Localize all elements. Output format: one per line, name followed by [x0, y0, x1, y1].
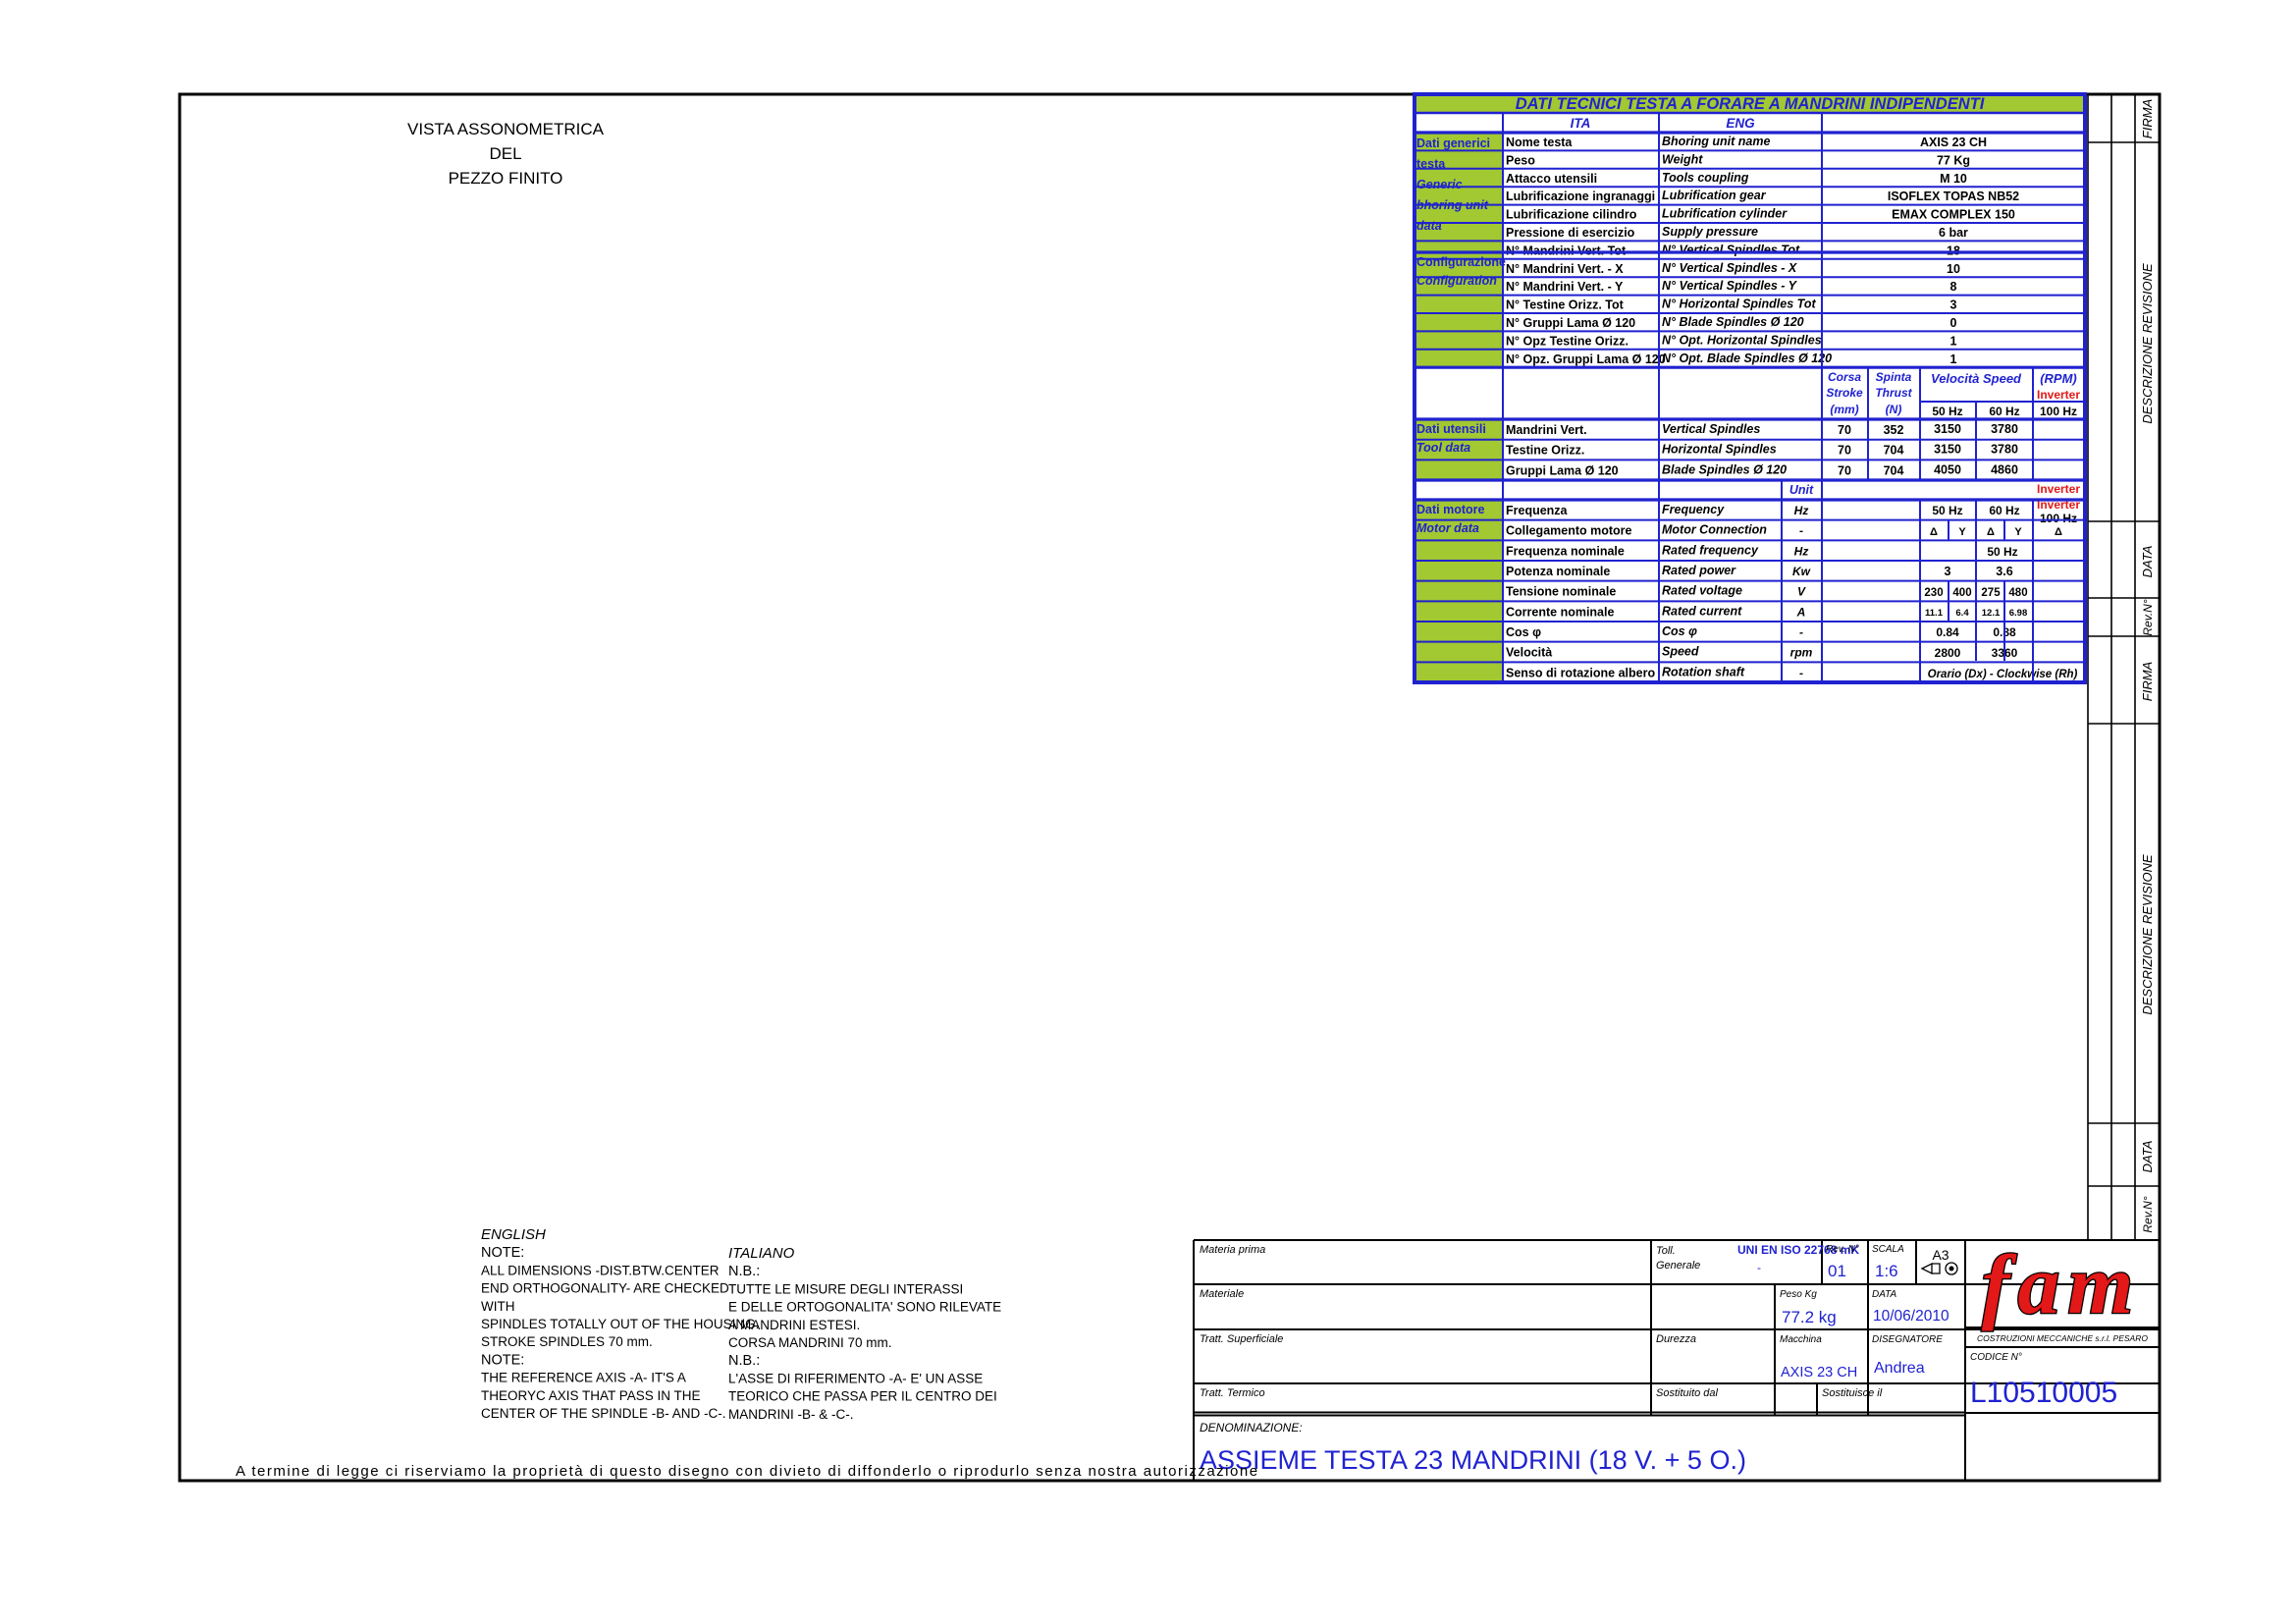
svg-text:Testine Orizz.: Testine Orizz. [1506, 444, 1584, 458]
svg-text:6.4: 6.4 [1955, 608, 1969, 619]
svg-text:Spinta: Spinta [1876, 370, 1912, 384]
svg-text:01: 01 [1828, 1262, 1846, 1280]
svg-text:ITALIANO: ITALIANO [728, 1245, 795, 1262]
svg-text:6.98: 6.98 [2009, 608, 2028, 619]
svg-text:Durezza: Durezza [1656, 1333, 1696, 1345]
svg-text:60 Hz: 60 Hz [1989, 405, 2019, 418]
svg-text:N° Gruppi Lama Ø 120: N° Gruppi Lama Ø 120 [1506, 316, 1635, 330]
svg-text:3780: 3780 [1991, 443, 2018, 457]
svg-text:Motor data: Motor data [1416, 521, 1479, 535]
svg-text:Dati generici: Dati generici [1416, 136, 1490, 150]
svg-text:Potenza nominale: Potenza nominale [1506, 565, 1610, 578]
svg-text:Horizontal Spindles: Horizontal Spindles [1662, 443, 1777, 457]
svg-text:4050: 4050 [1934, 462, 1961, 476]
svg-text:3: 3 [1945, 565, 1951, 578]
svg-text:Stroke: Stroke [1826, 386, 1863, 400]
svg-text:CODICE N°: CODICE N° [1970, 1352, 2022, 1363]
svg-text:Δ: Δ [1987, 526, 1995, 538]
svg-text:-: - [1799, 625, 1803, 639]
svg-text:ISOFLEX TOPAS NB52: ISOFLEX TOPAS NB52 [1888, 189, 2019, 203]
svg-text:Tool data: Tool data [1416, 441, 1470, 455]
svg-text:704: 704 [1884, 463, 1904, 477]
svg-text:Rotation shaft: Rotation shaft [1662, 665, 1745, 678]
svg-text:Senso di rotazione albero: Senso di rotazione albero [1506, 666, 1655, 679]
svg-text:N.B.:: N.B.: [728, 1264, 760, 1279]
svg-text:N° Testine Orizz. Tot: N° Testine Orizz. Tot [1506, 298, 1625, 312]
svg-text:Velocità Speed: Velocità Speed [1931, 371, 2022, 386]
svg-text:Collegamento motore: Collegamento motore [1506, 524, 1632, 538]
svg-text:COSTRUZIONI MECCANICHE s.r.l.: COSTRUZIONI MECCANICHE s.r.l. PESARO [1977, 1333, 2148, 1343]
svg-text:N.B.:: N.B.: [728, 1353, 760, 1369]
svg-text:SPINDLES TOTALLY OUT OF THE HO: SPINDLES TOTALLY OUT OF THE HOUSING. [481, 1317, 759, 1331]
svg-text:Corrente nominale: Corrente nominale [1506, 605, 1614, 619]
svg-text:MANDRINI -B- & -C-.: MANDRINI -B- & -C-. [728, 1407, 854, 1422]
svg-text:Sostituito dal: Sostituito dal [1656, 1387, 1719, 1399]
svg-text:AXIS 23 CH: AXIS 23 CH [1920, 135, 1987, 149]
svg-text:N° Blade Spindles Ø 120: N° Blade Spindles Ø 120 [1662, 315, 1804, 329]
svg-text:8: 8 [1950, 280, 1957, 294]
svg-text:DEL: DEL [489, 144, 521, 163]
svg-text:Generic: Generic [1416, 178, 1463, 191]
svg-text:77.2 kg: 77.2 kg [1782, 1308, 1837, 1326]
svg-text:Configuration: Configuration [1416, 274, 1497, 288]
svg-text:STROKE SPINDLES 70 mm.: STROKE SPINDLES 70 mm. [481, 1334, 653, 1349]
svg-text:Inverter: Inverter [2037, 388, 2080, 402]
svg-text:Frequenza: Frequenza [1506, 504, 1569, 517]
svg-text:Vertical Spindles: Vertical Spindles [1662, 422, 1760, 436]
svg-text:Supply pressure: Supply pressure [1662, 225, 1758, 239]
svg-text:70: 70 [1838, 463, 1851, 477]
svg-text:Dati utensili: Dati utensili [1416, 422, 1486, 436]
svg-text:Configurazione: Configurazione [1416, 255, 1506, 269]
svg-text:Macchina: Macchina [1780, 1334, 1822, 1345]
svg-text:6 bar: 6 bar [1939, 226, 1968, 240]
svg-text:Dati motore: Dati motore [1416, 503, 1485, 516]
svg-text:Blade Spindles Ø 120: Blade Spindles Ø 120 [1662, 462, 1787, 476]
svg-text:N° Mandrini Vert. - Y: N° Mandrini Vert. - Y [1506, 280, 1624, 294]
svg-text:N° Horizontal Spindles Tot: N° Horizontal Spindles Tot [1662, 298, 1816, 311]
svg-text:FIRMA: FIRMA [2140, 99, 2155, 138]
svg-text:A: A [1796, 605, 1806, 619]
svg-text:TUTTE LE MISURE DEGLI INTERASS: TUTTE LE MISURE DEGLI INTERASSI [728, 1281, 963, 1296]
svg-text:M 10: M 10 [1940, 172, 1967, 186]
svg-text:10: 10 [1947, 262, 1960, 276]
svg-text:ALL DIMENSIONS -DIST.BTW.CENTE: ALL DIMENSIONS -DIST.BTW.CENTER [481, 1263, 720, 1277]
svg-text:N° Mandrini Vert. - X: N° Mandrini Vert. - X [1506, 262, 1624, 276]
svg-text:Rev.N°: Rev.N° [2141, 599, 2155, 635]
svg-text:Δ: Δ [1930, 526, 1938, 538]
svg-text:Frequency: Frequency [1662, 503, 1725, 516]
svg-text:230: 230 [1924, 587, 1943, 599]
svg-text:EMAX COMPLEX 150: EMAX COMPLEX 150 [1892, 208, 2015, 222]
svg-text:N° Opz Testine Orizz.: N° Opz Testine Orizz. [1506, 334, 1629, 348]
svg-text:Cos φ: Cos φ [1506, 625, 1541, 639]
svg-text:DISEGNATORE: DISEGNATORE [1872, 1334, 1943, 1345]
svg-text:3: 3 [1950, 298, 1957, 312]
svg-text:Peso Kg: Peso Kg [1780, 1289, 1817, 1300]
svg-text:E DELLE ORTOGONALITA' SONO RIL: E DELLE ORTOGONALITA' SONO RILEVATE [728, 1300, 1001, 1315]
svg-text:Tratt. Termico: Tratt. Termico [1200, 1387, 1265, 1399]
svg-text:(RPM): (RPM) [2040, 371, 2077, 386]
svg-text:Sostituisce il: Sostituisce il [1822, 1387, 1883, 1399]
svg-text:N° Opt. Horizontal Spindles: N° Opt. Horizontal Spindles [1662, 333, 1822, 347]
svg-text:ENG: ENG [1726, 116, 1755, 131]
svg-text:DATA: DATA [1872, 1289, 1897, 1300]
svg-text:704: 704 [1884, 444, 1904, 458]
svg-text:ENGLISH: ENGLISH [481, 1226, 546, 1243]
svg-text:PEZZO FINITO: PEZZO FINITO [449, 169, 563, 188]
svg-text:DESCRIZIONE REVISIONE: DESCRIZIONE REVISIONE [2140, 854, 2155, 1015]
svg-text:ASSIEME TESTA 23 MANDRINI (18: ASSIEME TESTA 23 MANDRINI (18 V. + 5 O.) [1200, 1445, 1746, 1475]
svg-text:3780: 3780 [1991, 422, 2018, 436]
svg-text:Nome testa: Nome testa [1506, 135, 1573, 149]
svg-text:THE REFERENCE AXIS -A- IT'S A: THE REFERENCE AXIS -A- IT'S A [481, 1371, 686, 1385]
svg-text:Velocità: Velocità [1506, 646, 1552, 660]
svg-text:Rated power: Rated power [1662, 564, 1736, 577]
svg-text:0.84: 0.84 [1936, 625, 1959, 639]
svg-text:END ORTHOGONALITY- ARE CHECKED: END ORTHOGONALITY- ARE CHECKED [481, 1281, 729, 1296]
svg-text:Tools coupling: Tools coupling [1662, 171, 1749, 185]
svg-text:Cos φ: Cos φ [1662, 624, 1697, 638]
svg-text:3150: 3150 [1934, 443, 1961, 457]
svg-text:DENOMINAZIONE:: DENOMINAZIONE: [1200, 1421, 1303, 1435]
svg-text:N° Opt. Blade Spindles Ø 120: N° Opt. Blade Spindles Ø 120 [1662, 352, 1832, 365]
svg-text:Frequenza nominale: Frequenza nominale [1506, 544, 1625, 558]
svg-text:3.6: 3.6 [1996, 565, 2012, 578]
svg-text:L'ASSE DI RIFERIMENTO -A- E' U: L'ASSE DI RIFERIMENTO -A- E' UN ASSE [728, 1371, 983, 1385]
svg-text:A MANDRINI ESTESI.: A MANDRINI ESTESI. [728, 1318, 860, 1332]
svg-text:12.1: 12.1 [1982, 608, 2001, 619]
svg-text:Materiale: Materiale [1200, 1288, 1244, 1300]
svg-text:rpm: rpm [1790, 646, 1813, 660]
svg-text:Thrust: Thrust [1875, 386, 1912, 400]
svg-text:-: - [1799, 666, 1803, 679]
svg-text:77 Kg: 77 Kg [1937, 153, 1970, 167]
svg-text:Pressione di esercizio: Pressione di esercizio [1506, 226, 1635, 240]
svg-text:60 Hz: 60 Hz [1989, 504, 2019, 517]
svg-text:50 Hz: 50 Hz [1932, 405, 1962, 418]
svg-text:1: 1 [1950, 334, 1957, 348]
svg-text:CENTER OF THE SPINDLE -B- AND: CENTER OF THE SPINDLE -B- AND -C-. [481, 1406, 726, 1421]
svg-text:Tensione nominale: Tensione nominale [1506, 585, 1616, 599]
svg-text:70: 70 [1838, 423, 1851, 437]
svg-text:Rated current: Rated current [1662, 604, 1742, 618]
svg-text:Lubrificazione ingranaggi: Lubrificazione ingranaggi [1506, 189, 1655, 203]
svg-text:Lubrificazione cilindro: Lubrificazione cilindro [1506, 208, 1637, 222]
svg-text:Materia prima: Materia prima [1200, 1244, 1265, 1256]
svg-text:A3: A3 [1932, 1247, 1949, 1263]
svg-text:Attacco utensili: Attacco utensili [1506, 172, 1597, 186]
svg-text:CORSA MANDRINI 70 mm.: CORSA MANDRINI 70 mm. [728, 1335, 892, 1350]
svg-text:Δ: Δ [2055, 526, 2062, 538]
svg-text:480: 480 [2008, 587, 2027, 599]
svg-text:WITH: WITH [481, 1299, 515, 1314]
svg-text:10/06/2010: 10/06/2010 [1873, 1308, 1949, 1325]
svg-text:-: - [1799, 524, 1803, 538]
svg-text:Tratt. Superficiale: Tratt. Superficiale [1200, 1333, 1283, 1345]
svg-text:N° Opz. Gruppi Lama Ø 120: N° Opz. Gruppi Lama Ø 120 [1506, 352, 1666, 366]
svg-text:Hz: Hz [1794, 544, 1809, 558]
svg-text:Bhoring unit name: Bhoring unit name [1662, 135, 1770, 148]
svg-text:VISTA ASSONOMETRICA: VISTA ASSONOMETRICA [407, 120, 605, 138]
svg-text:N° Vertical Spindles Tot: N° Vertical Spindles Tot [1662, 243, 1800, 256]
svg-text:Lubrification gear: Lubrification gear [1662, 189, 1767, 202]
svg-text:Rev.N°: Rev.N° [2141, 1196, 2155, 1232]
svg-text:Toll.: Toll. [1656, 1245, 1676, 1257]
svg-text:Peso: Peso [1506, 153, 1535, 167]
svg-text:Andrea: Andrea [1874, 1360, 1925, 1377]
svg-text:Rated voltage: Rated voltage [1662, 584, 1742, 598]
svg-text:275: 275 [1981, 587, 2001, 599]
svg-text:A termine di legge ci riservia: A termine di legge ci riserviamo la prop… [236, 1463, 1259, 1480]
svg-text:0: 0 [1950, 316, 1957, 330]
svg-text:Motor Connection: Motor Connection [1662, 523, 1767, 537]
svg-text:Generale: Generale [1656, 1260, 1700, 1272]
svg-text:70: 70 [1838, 444, 1851, 458]
svg-text:TEORICO CHE PASSA PER IL CENTR: TEORICO CHE PASSA PER IL CENTRO DEI [728, 1389, 997, 1404]
svg-text:Gruppi Lama Ø 120: Gruppi Lama Ø 120 [1506, 463, 1619, 477]
svg-text:N° Vertical Spindles - Y: N° Vertical Spindles - Y [1662, 279, 1798, 293]
svg-text:N° Vertical Spindles - X: N° Vertical Spindles - X [1662, 261, 1797, 275]
svg-text:100 Hz: 100 Hz [2040, 512, 2077, 525]
svg-text:Hz: Hz [1794, 504, 1809, 517]
svg-text:Y: Y [2014, 526, 2022, 538]
svg-text:SCALA: SCALA [1872, 1244, 1904, 1255]
svg-text:-: - [1757, 1261, 1761, 1274]
svg-text:Mandrini Vert.: Mandrini Vert. [1506, 423, 1587, 437]
svg-text:FIRMA: FIRMA [2140, 662, 2155, 701]
svg-text:L10510005: L10510005 [1970, 1377, 2117, 1409]
svg-text:352: 352 [1884, 423, 1904, 437]
svg-text:DATI TECNICI TESTA A FORARE A: DATI TECNICI TESTA A FORARE A MANDRINI I… [1516, 95, 1985, 113]
svg-text:Kw: Kw [1792, 565, 1811, 578]
svg-text:DATA: DATA [2140, 1141, 2155, 1173]
svg-text:2800: 2800 [1935, 646, 1961, 660]
svg-text:Orario (Dx) - Clockwise (Rh): Orario (Dx) - Clockwise (Rh) [1928, 669, 2078, 680]
svg-text:Inverter: Inverter [2037, 482, 2080, 496]
svg-text:400: 400 [1952, 587, 1971, 599]
svg-text:Corsa: Corsa [1828, 370, 1861, 384]
svg-text:Weight: Weight [1662, 152, 1703, 166]
svg-text:50 Hz: 50 Hz [1987, 545, 2017, 559]
svg-text:V: V [1797, 585, 1806, 599]
svg-text:data: data [1416, 219, 1442, 233]
svg-text:Unit: Unit [1789, 483, 1814, 497]
svg-text:ITA: ITA [1571, 116, 1591, 131]
svg-text:4860: 4860 [1991, 462, 2018, 476]
svg-text:fam: fam [1982, 1237, 2142, 1331]
svg-text:Lubrification cylinder: Lubrification cylinder [1662, 207, 1788, 221]
svg-text:NOTE:: NOTE: [481, 1352, 524, 1368]
svg-text:DATA: DATA [2140, 546, 2155, 578]
svg-text:100 Hz: 100 Hz [2040, 405, 2077, 418]
svg-text:Rated frequency: Rated frequency [1662, 543, 1759, 557]
svg-text:1:6: 1:6 [1875, 1262, 1898, 1280]
svg-text:DESCRIZIONE REVISIONE: DESCRIZIONE REVISIONE [2140, 263, 2155, 424]
svg-text:Speed: Speed [1662, 645, 1699, 659]
svg-text:50 Hz: 50 Hz [1932, 504, 1962, 517]
svg-text:3150: 3150 [1934, 422, 1961, 436]
svg-text:1: 1 [1950, 352, 1957, 366]
svg-text:Rev. N°: Rev. N° [1826, 1244, 1859, 1255]
svg-text:THEORYC AXIS THAT PASS IN THE: THEORYC AXIS THAT PASS IN THE [481, 1388, 701, 1403]
svg-text:Y: Y [1958, 526, 1966, 538]
svg-text:NOTE:: NOTE: [481, 1245, 524, 1261]
svg-text:AXIS 23 CH: AXIS 23 CH [1781, 1365, 1857, 1380]
svg-text:11.1: 11.1 [1925, 608, 1944, 619]
svg-text:(mm): (mm) [1830, 403, 1858, 416]
svg-text:(N): (N) [1886, 403, 1902, 416]
